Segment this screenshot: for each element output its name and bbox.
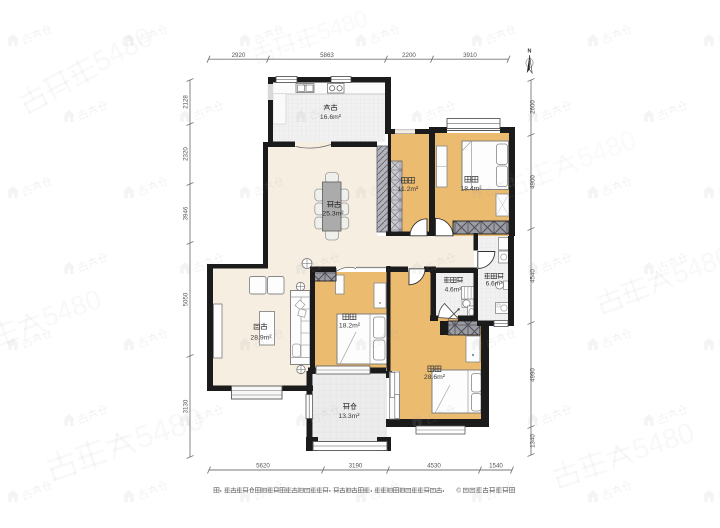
svg-text:©: ©: [457, 488, 462, 495]
svg-text:13.3m²: 13.3m²: [338, 413, 360, 420]
svg-text:N: N: [528, 49, 532, 55]
svg-text:4.6m²: 4.6m²: [445, 287, 463, 294]
svg-text:2200: 2200: [402, 52, 416, 59]
svg-text:6.6m²: 6.6m²: [486, 281, 504, 288]
svg-text:1340: 1340: [530, 434, 537, 448]
svg-text:2920: 2920: [232, 52, 246, 59]
svg-text:18.2m²: 18.2m²: [339, 323, 361, 330]
svg-text:5050: 5050: [183, 292, 190, 306]
svg-text:5620: 5620: [256, 463, 270, 470]
svg-text:2128: 2128: [183, 95, 190, 109]
svg-text:2320: 2320: [183, 147, 190, 161]
svg-text:3910: 3910: [463, 52, 477, 59]
svg-text:4990: 4990: [530, 368, 537, 382]
svg-text:16.6m²: 16.6m²: [320, 114, 342, 121]
svg-text:1540: 1540: [489, 463, 503, 470]
svg-text:28.6m²: 28.6m²: [424, 374, 446, 381]
svg-text:25.3m²: 25.3m²: [322, 211, 344, 218]
svg-text:3946: 3946: [183, 206, 190, 220]
svg-text:11.2m²: 11.2m²: [398, 186, 419, 193]
svg-text:5863: 5863: [320, 52, 334, 59]
svg-text:4530: 4530: [427, 463, 441, 470]
svg-text:3190: 3190: [349, 463, 363, 470]
